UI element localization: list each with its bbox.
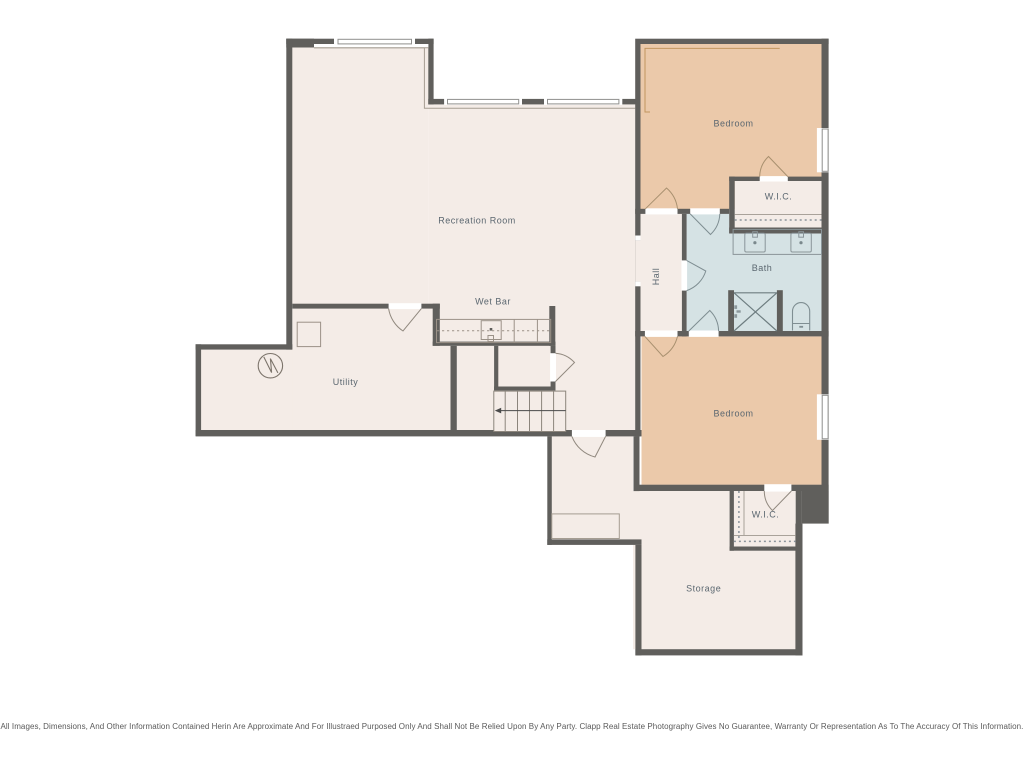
svg-text:W.I.C.: W.I.C. [752, 510, 780, 520]
svg-text:Wet Bar: Wet Bar [475, 297, 511, 307]
svg-text:W.I.C.: W.I.C. [765, 192, 793, 202]
svg-text:Bedroom: Bedroom [713, 119, 753, 129]
svg-text:Bath: Bath [752, 263, 773, 273]
svg-text:Hall: Hall [651, 268, 661, 286]
svg-text:Recreation Room: Recreation Room [438, 216, 516, 226]
svg-text:Utility: Utility [333, 377, 359, 387]
svg-text:Storage: Storage [686, 584, 721, 594]
svg-text:All Images, Dimensions, And Ot: All Images, Dimensions, And Other Inform… [1, 722, 1024, 731]
svg-text:Bedroom: Bedroom [713, 409, 753, 419]
